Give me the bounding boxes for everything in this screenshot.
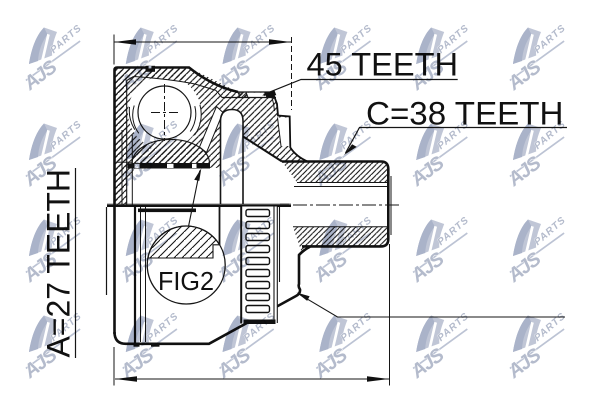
- svg-text:FIG2: FIG2: [158, 266, 214, 296]
- svg-text:AJS: AJS: [19, 56, 61, 96]
